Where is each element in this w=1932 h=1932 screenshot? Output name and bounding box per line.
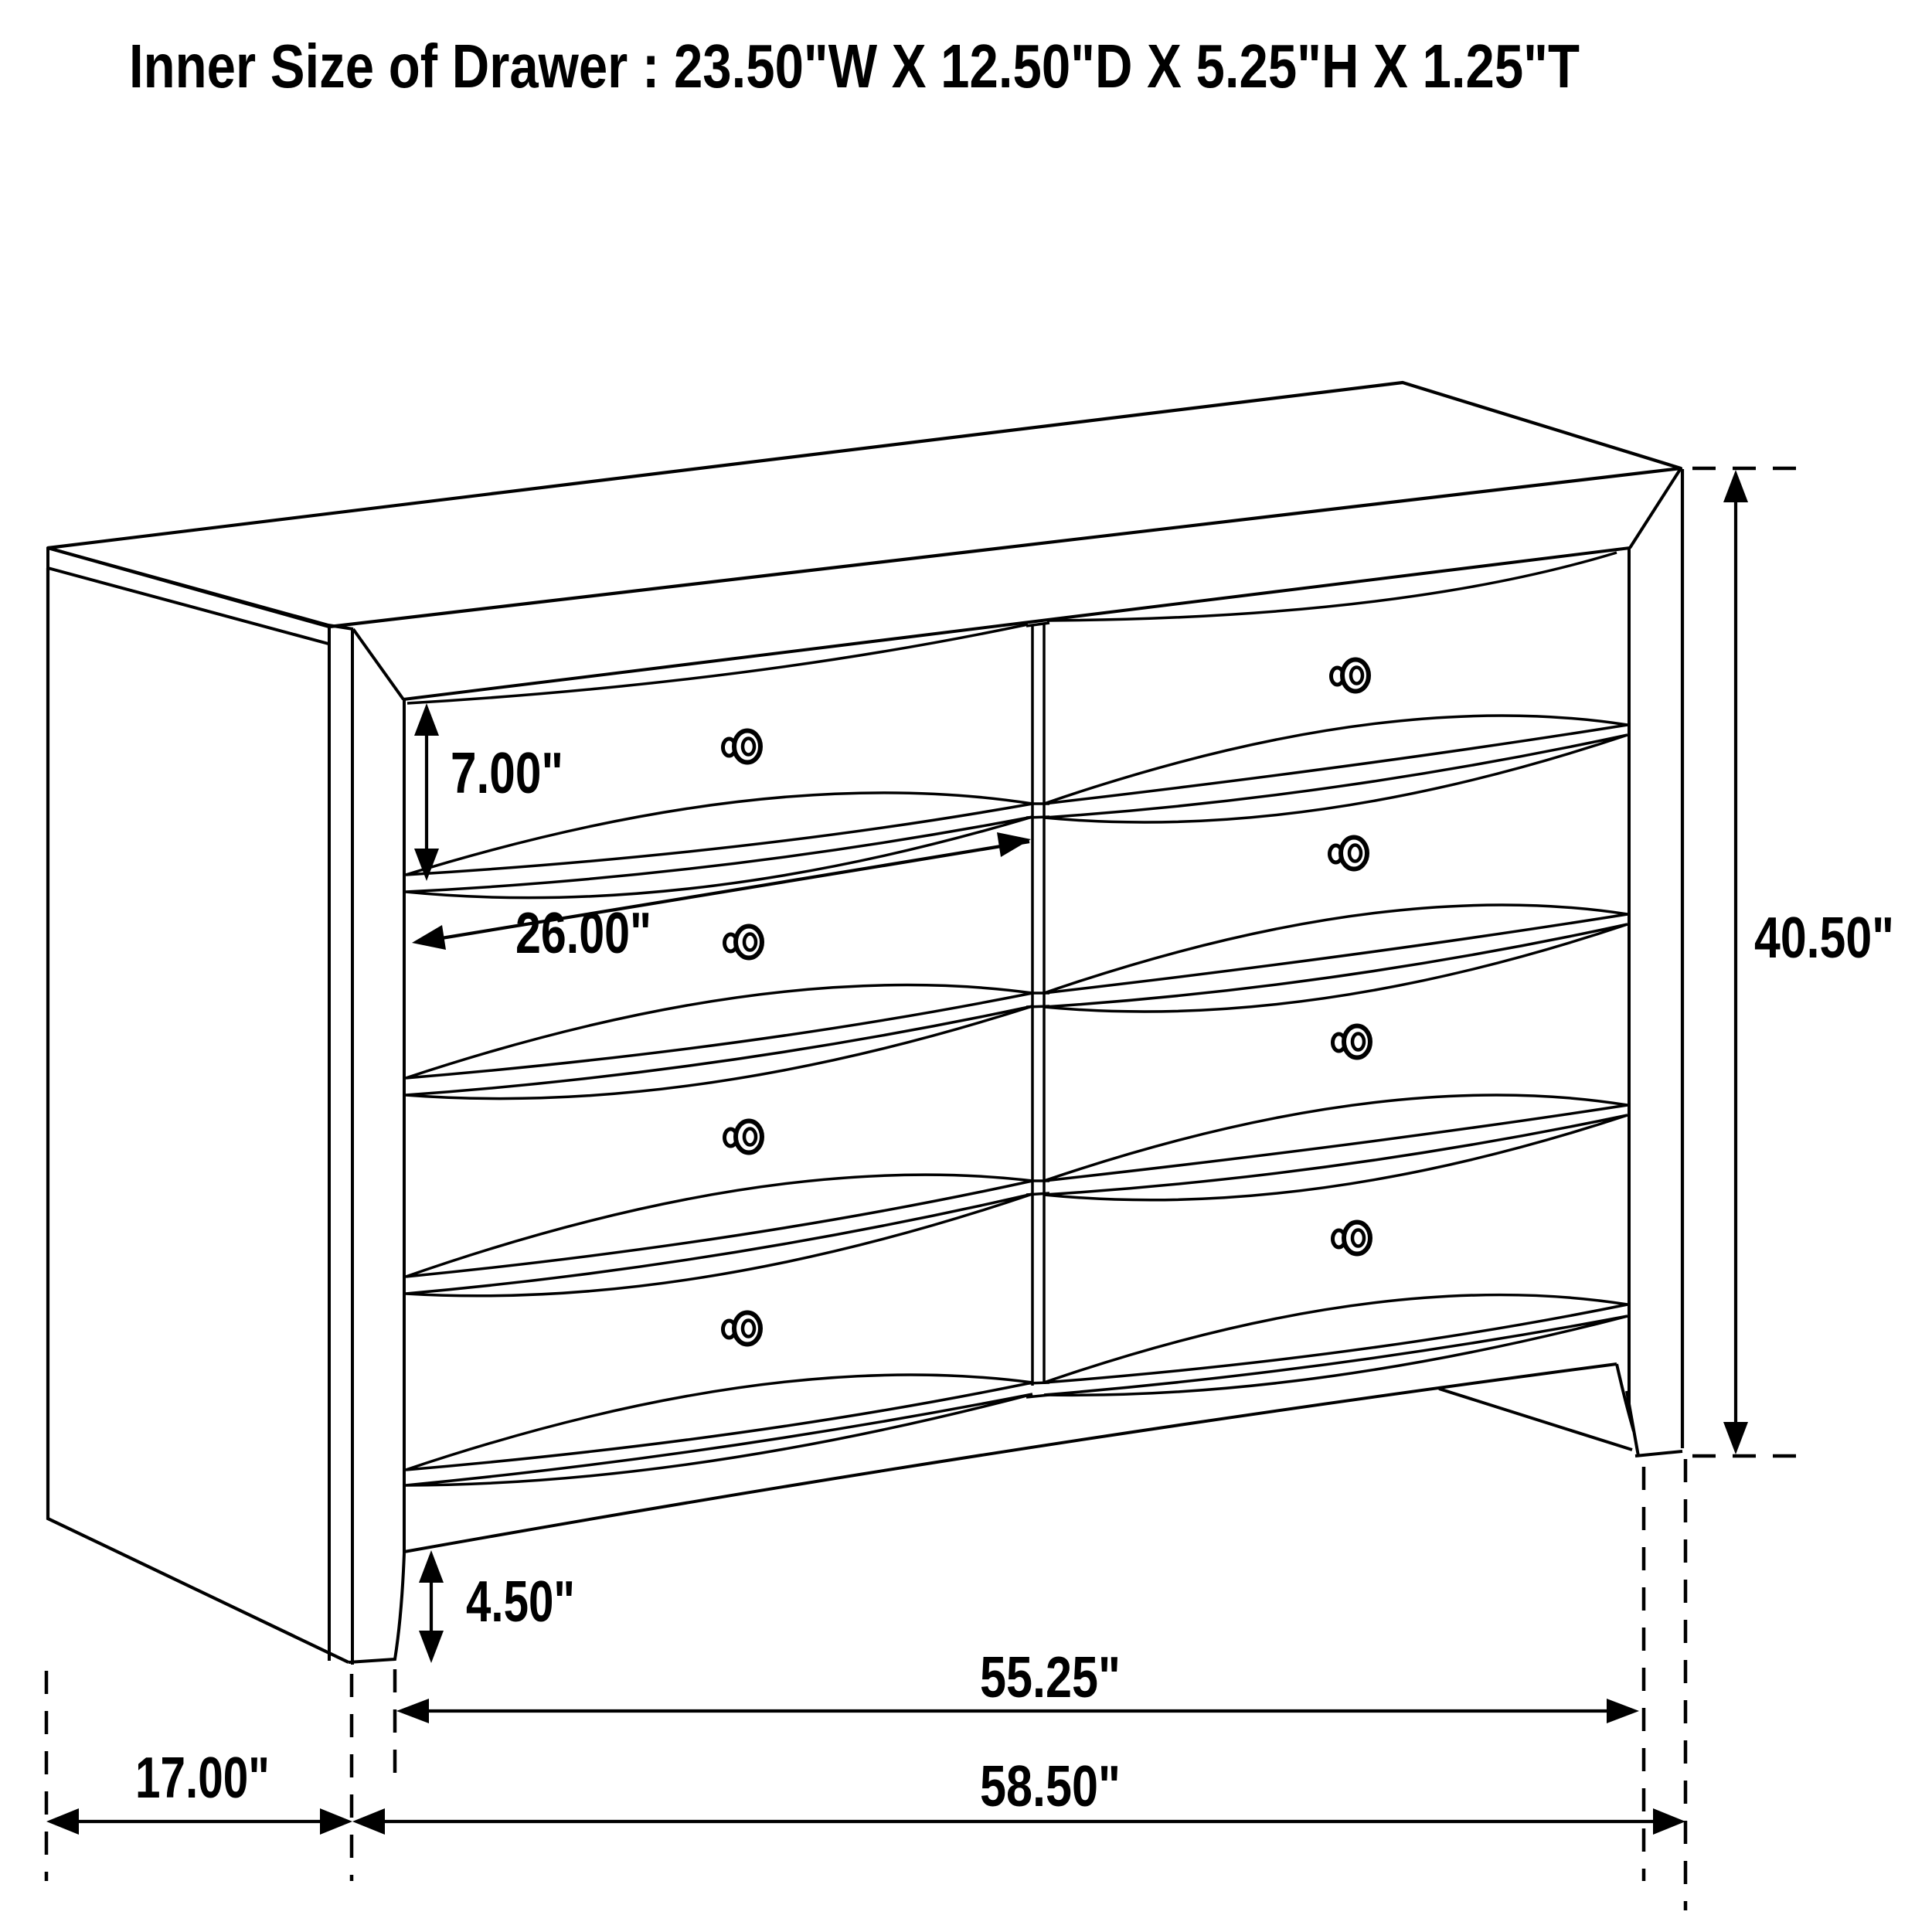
svg-text:40.50": 40.50" (1754, 905, 1894, 970)
svg-text:55.25": 55.25" (980, 1645, 1121, 1709)
svg-text:4.50": 4.50" (466, 1569, 575, 1634)
svg-text:17.00": 17.00" (135, 1745, 270, 1810)
svg-text:Inner Size of Drawer : 23.50"W: Inner Size of Drawer : 23.50"W X 12.50"D… (129, 32, 1580, 100)
svg-text:26.00": 26.00" (515, 900, 651, 965)
svg-text:7.00": 7.00" (451, 740, 563, 805)
svg-text:58.50": 58.50" (980, 1753, 1121, 1818)
